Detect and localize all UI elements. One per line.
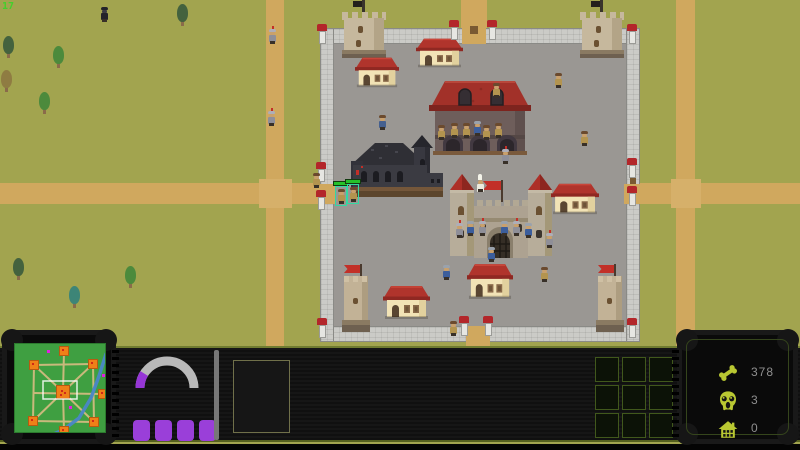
knight-unit[interactable] [512, 220, 520, 236]
road-east-vertical [676, 0, 695, 346]
tree [52, 46, 65, 69]
soldier-unit[interactable] [524, 222, 532, 238]
villager-unit[interactable] [554, 72, 562, 88]
wall-post [487, 20, 497, 40]
house[interactable] [416, 36, 463, 69]
gate-cart [470, 26, 478, 34]
bone-count: 378 [751, 365, 791, 379]
minimap-canvas[interactable] [15, 344, 106, 433]
tree [12, 258, 25, 281]
inventory-slot[interactable] [595, 385, 619, 410]
villager-unit[interactable] [540, 266, 548, 282]
resource-panel-inner: 378 3 [686, 339, 789, 435]
charge-bar [133, 420, 150, 441]
castle-keep[interactable] [449, 174, 553, 260]
villager-unit[interactable] [462, 122, 470, 138]
wall-post [627, 318, 637, 338]
flag-tower-southeast[interactable] [592, 264, 628, 332]
watchtower-northwest[interactable] [336, 0, 392, 58]
villager-unit[interactable] [494, 122, 502, 138]
charge-bar [155, 420, 172, 441]
charge-bars [133, 420, 216, 442]
inventory-slot[interactable] [622, 413, 646, 438]
house[interactable] [383, 283, 430, 321]
road-west-vertical [266, 0, 284, 346]
villager-unit[interactable] [312, 172, 320, 188]
wall-post [317, 24, 327, 44]
house-count: 0 [751, 421, 791, 435]
selected-unit-slot[interactable] [233, 360, 290, 433]
hud-bottom-edge [0, 444, 800, 450]
bezel-teeth [672, 350, 679, 438]
tree [68, 286, 81, 309]
villager-unit[interactable] [482, 124, 490, 140]
wall-post [627, 24, 637, 44]
hud-divider [214, 350, 219, 440]
villager-unit[interactable] [580, 130, 588, 146]
tree [176, 4, 189, 27]
manor-house[interactable] [429, 77, 531, 155]
bezel-teeth [112, 350, 119, 440]
tree [2, 36, 15, 59]
tree [0, 70, 13, 93]
house-icon [717, 418, 739, 440]
wall-post [449, 20, 459, 40]
house[interactable] [467, 261, 513, 301]
house[interactable] [355, 55, 399, 89]
soldier-unit[interactable] [487, 246, 495, 262]
villager-unit[interactable] [492, 82, 500, 98]
wall-post [483, 316, 493, 336]
knight-unit[interactable] [478, 220, 486, 236]
soldier-unit[interactable] [442, 264, 450, 280]
skull-count: 3 [751, 393, 791, 407]
knight-unit[interactable] [455, 222, 463, 238]
health-bar [346, 180, 360, 183]
inventory-slot[interactable] [622, 357, 646, 382]
soldier-unit[interactable] [466, 220, 474, 236]
resource-row-skulls: 3 [687, 388, 788, 414]
skull-icon [717, 390, 739, 412]
resource-panel: 378 3 [677, 330, 798, 444]
resource-row-bones: 378 [687, 360, 788, 386]
road-east-horizontal [640, 183, 800, 204]
road-intersection [671, 179, 701, 208]
villager-unit[interactable] [437, 124, 445, 140]
road-intersection [259, 179, 292, 208]
knight-unit[interactable] [268, 28, 276, 44]
minimap-device [2, 330, 116, 444]
knight-unit[interactable] [545, 232, 553, 248]
knight-unit[interactable] [501, 148, 509, 164]
villager-unit[interactable] [337, 188, 345, 204]
game-screen: 378 3 [0, 0, 800, 450]
inventory-slot[interactable] [622, 385, 646, 410]
minimap[interactable] [14, 343, 106, 433]
inventory-grid [595, 357, 673, 438]
wall-post [627, 158, 637, 178]
charge-bar [177, 420, 194, 441]
fps-counter: 17 [2, 1, 14, 12]
wall-post [317, 318, 327, 338]
inventory-slot[interactable] [649, 413, 673, 438]
wall-post [459, 316, 469, 336]
knight-unit[interactable] [267, 110, 275, 126]
tree [124, 266, 137, 289]
inventory-slot[interactable] [649, 357, 673, 382]
inventory-slot[interactable] [595, 357, 619, 382]
bone-icon [717, 362, 739, 384]
flag-tower-southwest[interactable] [338, 264, 374, 332]
soldier-unit[interactable] [473, 120, 481, 136]
wall-post [627, 186, 637, 206]
watchtower-northeast[interactable] [574, 0, 630, 58]
pope-unit[interactable] [476, 176, 484, 195]
villager-unit[interactable] [349, 186, 357, 202]
wall-post [316, 190, 326, 210]
villager-unit[interactable] [449, 320, 457, 336]
villager-blue-unit[interactable] [378, 114, 386, 130]
energy-gauge [132, 350, 204, 392]
soldier-unit[interactable] [500, 220, 508, 236]
villager-unit[interactable] [450, 122, 458, 138]
resource-row-houses: 0 [687, 416, 788, 442]
house[interactable] [551, 181, 599, 216]
dark-unit[interactable] [100, 6, 108, 22]
inventory-slot[interactable] [649, 385, 673, 410]
inventory-slot[interactable] [595, 413, 619, 438]
tree [38, 92, 51, 115]
